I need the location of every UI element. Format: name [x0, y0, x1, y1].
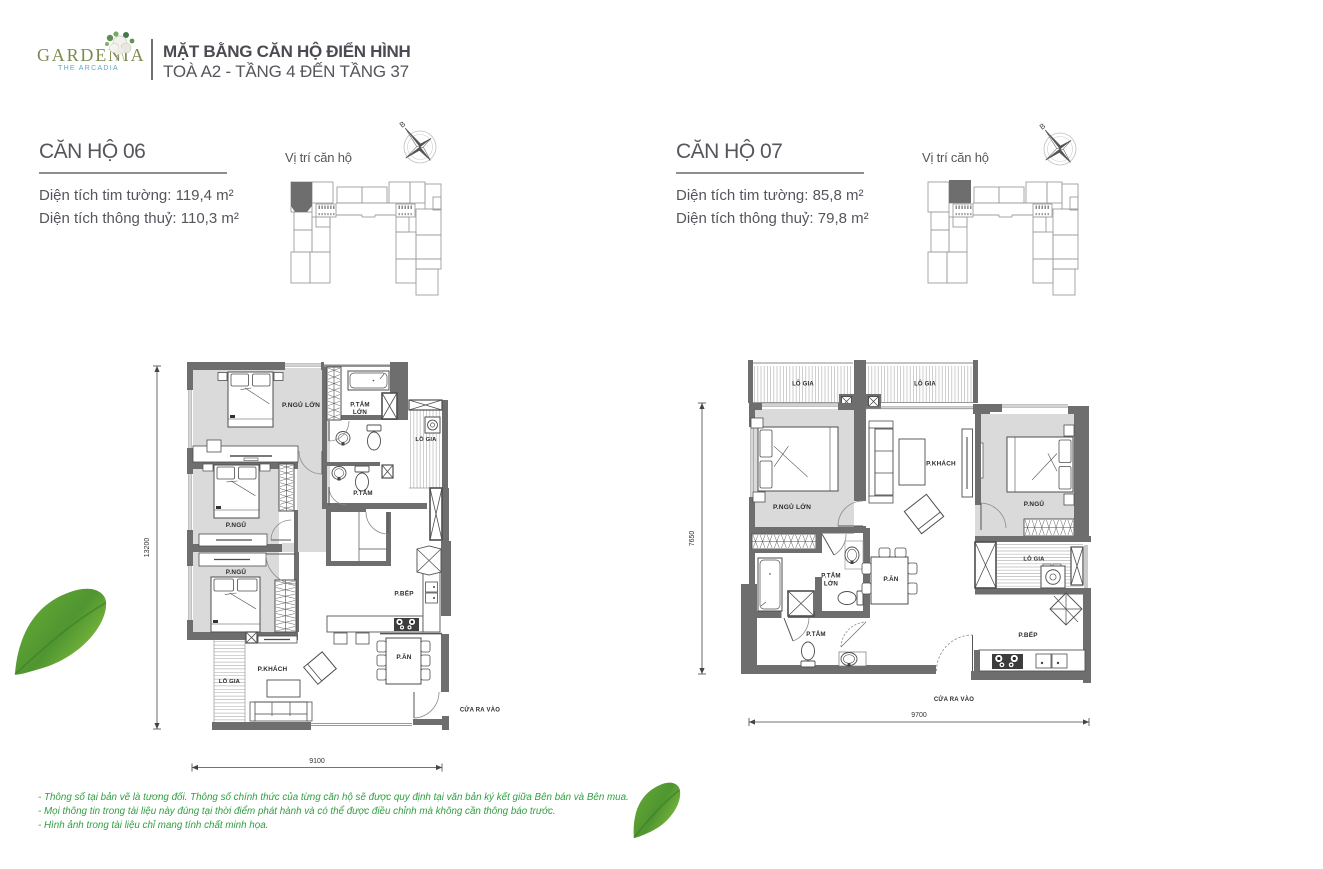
svg-text:P.BẾP: P.BẾP: [1018, 629, 1038, 639]
svg-text:P.KHÁCH: P.KHÁCH: [258, 664, 288, 673]
svg-text:P.KHÁCH: P.KHÁCH: [926, 459, 956, 468]
svg-text:P.TẮM: P.TẮM: [353, 489, 372, 497]
svg-text:CỬA RA VÀO: CỬA RA VÀO: [934, 696, 974, 703]
svg-text:13200: 13200: [144, 538, 151, 558]
svg-text:LÔ GIA: LÔ GIA: [792, 380, 814, 388]
svg-text:7650: 7650: [689, 531, 696, 547]
svg-text:P.ĂN: P.ĂN: [883, 574, 898, 583]
svg-text:P.NGỦ: P.NGỦ: [1024, 499, 1045, 508]
svg-text:P.TẮM: P.TẮM: [350, 401, 369, 409]
svg-text:9100: 9100: [309, 758, 325, 765]
svg-text:B: B: [1038, 121, 1047, 131]
svg-text:P.ĂN: P.ĂN: [396, 652, 411, 661]
svg-text:LỚN: LỚN: [824, 580, 838, 588]
svg-text:9700: 9700: [911, 712, 927, 719]
svg-text:LÔ GIA: LÔ GIA: [914, 380, 936, 388]
svg-text:LÔ GIA: LÔ GIA: [415, 435, 437, 443]
svg-text:P.NGỦ: P.NGỦ: [226, 567, 247, 576]
svg-text:CỬA RA VÀO: CỬA RA VÀO: [460, 707, 500, 714]
svg-text:LÔ GIA: LÔ GIA: [219, 677, 241, 685]
svg-text:P.TẮM: P.TẮM: [806, 630, 825, 638]
svg-text:LỚN: LỚN: [353, 408, 367, 416]
svg-text:P.BẾP: P.BẾP: [394, 588, 414, 598]
svg-text:P.TẮM: P.TẮM: [821, 572, 840, 580]
svg-text:P.NGỦ LỚN: P.NGỦ LỚN: [773, 502, 811, 511]
svg-text:P.NGỦ LỚN: P.NGỦ LỚN: [282, 400, 320, 409]
svg-text:LÔ GIA: LÔ GIA: [1023, 555, 1045, 563]
svg-text:P.NGỦ: P.NGỦ: [226, 520, 247, 529]
svg-text:B: B: [398, 119, 407, 129]
